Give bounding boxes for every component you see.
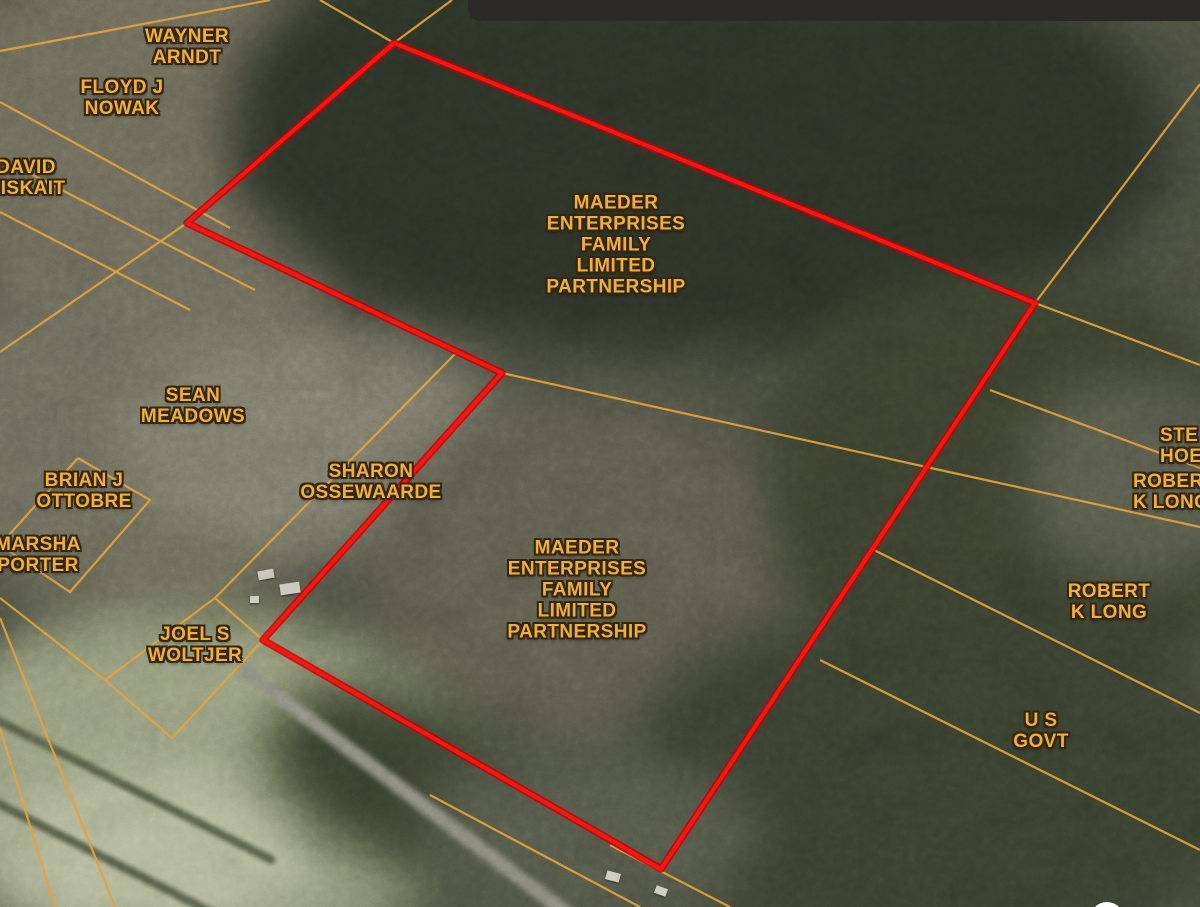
parcel-owner-label-robert-long-east: ROBERT K LONG [1133, 471, 1200, 513]
parcel-owner-label-marsha-porter: MARSHA PORTER [0, 534, 81, 576]
parcel-owner-label-sean-meadows: SEAN MEADOWS [141, 385, 245, 427]
parcel-owner-label-brian-ottobre: BRIAN J OTTOBRE [36, 470, 131, 512]
parcel-owner-label-sharon-ossewaarde: SHARON OSSEWAARDE [300, 461, 441, 503]
parcel-owner-label-us-govt: U S GOVT [1013, 710, 1068, 752]
owner-labels-layer: WAYNER ARNDTFLOYD J NOWAKDAVID RISKAITMA… [0, 0, 1200, 907]
parcel-owner-label-joel-woltjer: JOEL S WOLTJER [148, 624, 242, 666]
parcel-owner-label-david-riskait: DAVID RISKAIT [0, 157, 65, 199]
parcel-owner-label-floyd-nowak: FLOYD J NOWAK [80, 77, 163, 119]
top-status-bar [468, 0, 1200, 21]
parcel-owner-label-maeder-south: MAEDER ENTERPRISES FAMILY LIMITED PARTNE… [507, 538, 646, 643]
map-canvas[interactable]: WAYNER ARNDTFLOYD J NOWAKDAVID RISKAITMA… [0, 0, 1200, 907]
parcel-owner-label-robert-k-long: ROBERT K LONG [1068, 581, 1151, 623]
parcel-owner-label-ste-hoez: STE HOEZ [1160, 425, 1200, 467]
parcel-owner-label-maeder-north: MAEDER ENTERPRISES FAMILY LIMITED PARTNE… [546, 193, 685, 298]
parcel-owner-label-wayner-arndt: WAYNER ARNDT [145, 26, 229, 68]
